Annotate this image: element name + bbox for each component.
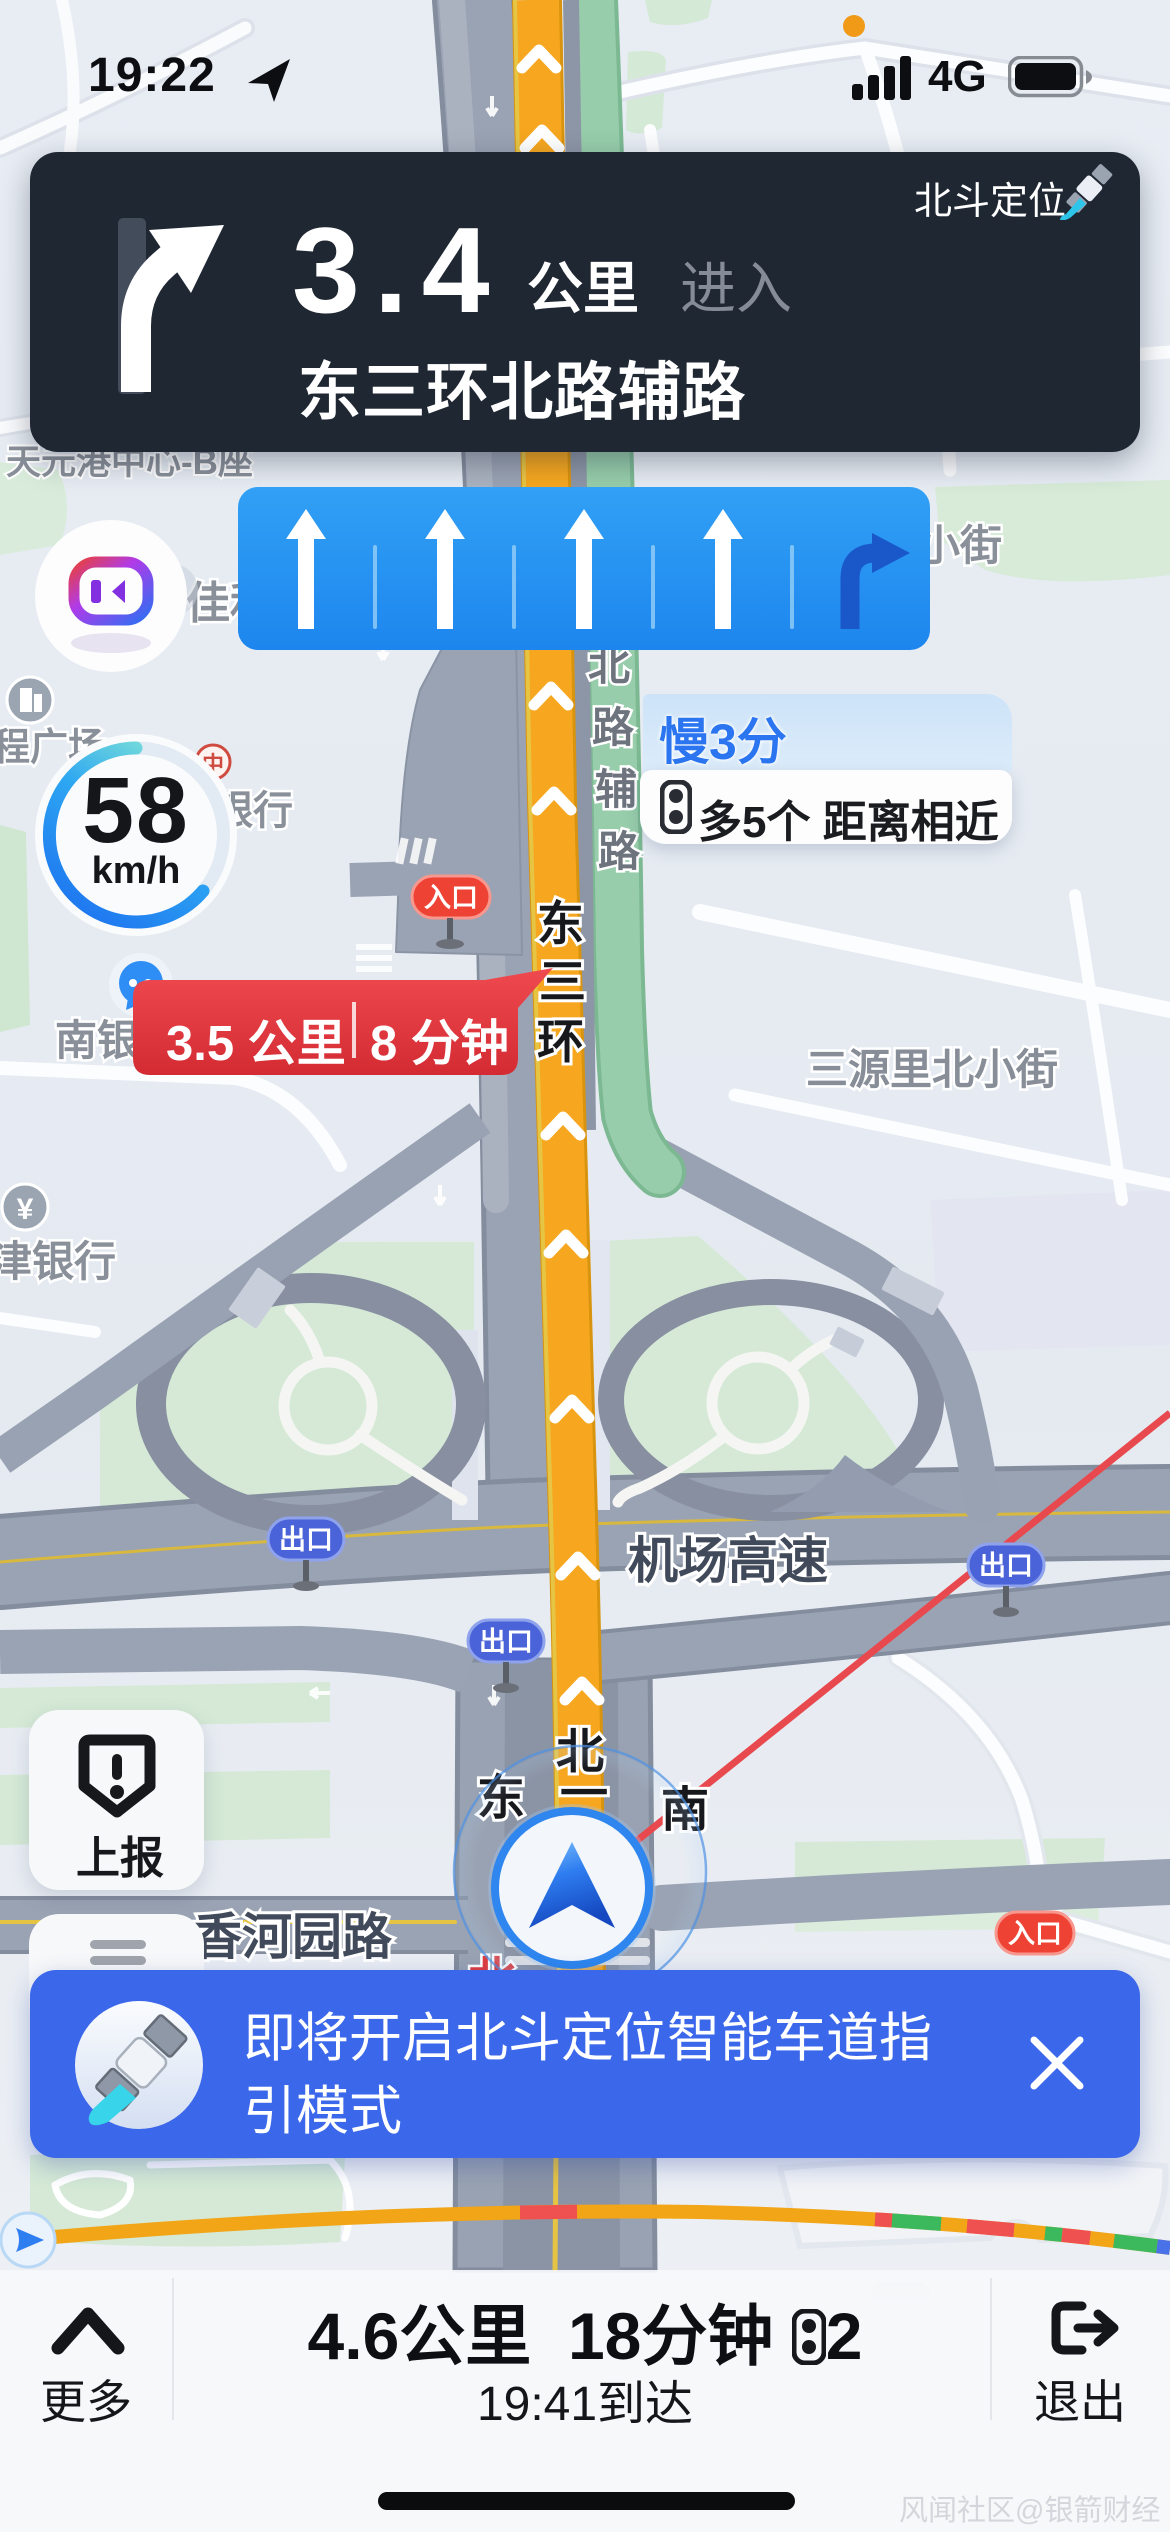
- svg-text:出口: 出口: [479, 1627, 533, 1657]
- svg-text:入口: 入口: [1008, 1919, 1062, 1949]
- svg-text:东: 东: [537, 897, 584, 950]
- svg-text:入口: 入口: [424, 883, 478, 913]
- svg-text:香河园路: 香河园路: [192, 1909, 393, 1965]
- svg-text:km/h: km/h: [92, 850, 181, 892]
- svg-text:三源里北小街: 三源里北小街: [806, 1046, 1058, 1093]
- svg-text:出口: 出口: [979, 1551, 1033, 1581]
- svg-text:¥: ¥: [17, 1193, 34, 1226]
- svg-text:南银: 南银: [55, 1017, 139, 1064]
- svg-text:路: 路: [592, 704, 635, 751]
- svg-text:出口: 出口: [279, 1525, 333, 1555]
- svg-text:小街: 小街: [918, 522, 1002, 569]
- svg-text:机场高速: 机场高速: [628, 1533, 828, 1589]
- svg-text:津银行: 津银行: [0, 1238, 116, 1285]
- svg-text:辅: 辅: [595, 766, 637, 813]
- svg-text:路: 路: [598, 828, 641, 875]
- svg-text:58: 58: [82, 758, 189, 862]
